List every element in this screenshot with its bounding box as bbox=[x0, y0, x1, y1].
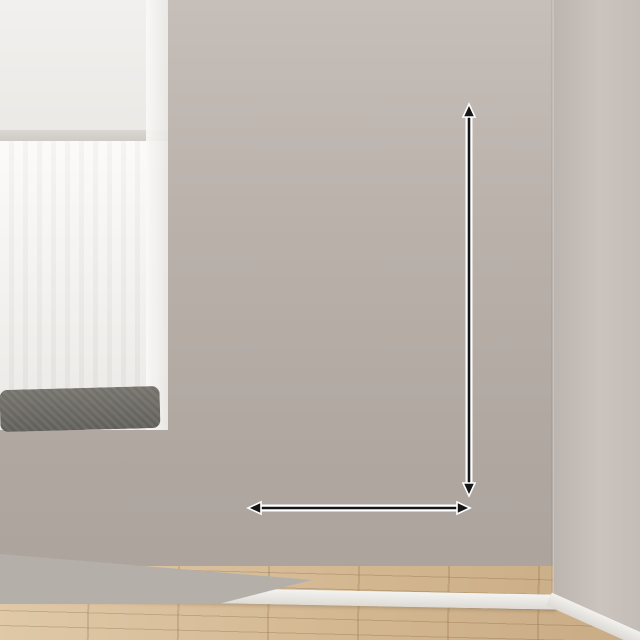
product-photo-scene: CARPE DIEM bbox=[0, 0, 640, 640]
width-arrow-icon bbox=[248, 502, 470, 514]
curtain-valance bbox=[0, 0, 168, 140]
height-arrow-icon bbox=[463, 104, 475, 496]
window-area bbox=[0, 0, 168, 430]
curtain-rail bbox=[0, 130, 168, 141]
window-jamb bbox=[146, 0, 168, 430]
sofa-throw-blanket bbox=[0, 386, 161, 432]
wall-corner bbox=[551, 0, 554, 600]
right-wall bbox=[553, 0, 640, 640]
